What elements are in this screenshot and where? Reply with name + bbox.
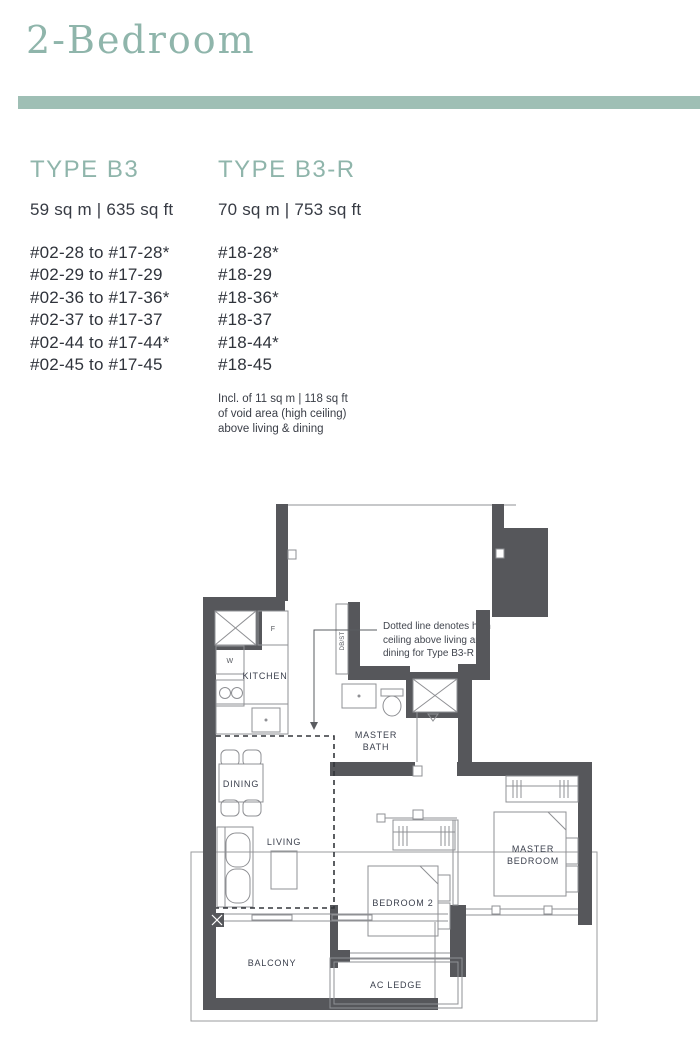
bath-sink bbox=[342, 684, 376, 708]
balcony-label: BALCONY bbox=[248, 958, 297, 968]
master-bed bbox=[494, 812, 578, 896]
hob bbox=[216, 680, 244, 706]
kitchen-label: KITCHEN bbox=[242, 671, 287, 681]
door-jamb bbox=[413, 810, 423, 819]
living-label: LIVING bbox=[267, 837, 301, 847]
kitchen-void-shaft bbox=[208, 605, 262, 650]
master-bedroom-label-2: BEDROOM bbox=[507, 856, 559, 866]
coffee-table bbox=[271, 851, 297, 889]
washer-label: W bbox=[227, 658, 234, 665]
floorplan-drawing: KITCHEN DINING LIVING MASTER BATH MASTER… bbox=[0, 0, 700, 1062]
door-jamb bbox=[377, 814, 385, 822]
ac-ledge-label: AC LEDGE bbox=[370, 980, 422, 990]
bedroom2-wardrobe bbox=[393, 820, 455, 850]
master-bath-label-2: BATH bbox=[363, 742, 390, 752]
door-jamb bbox=[496, 549, 504, 558]
db-st-label: DB/ST bbox=[340, 632, 346, 651]
bath-void-shaft bbox=[406, 672, 464, 718]
bedroom2-label: BEDROOM 2 bbox=[372, 898, 433, 908]
dining-label: DINING bbox=[223, 779, 259, 789]
master-bedroom-label-1: MASTER bbox=[512, 844, 554, 854]
master-wardrobe bbox=[506, 776, 578, 802]
toilet bbox=[381, 689, 403, 716]
master-window bbox=[466, 906, 578, 915]
floorplan-page: 2-Bedroom TYPE B3 59 sq m | 635 sq ft #0… bbox=[0, 0, 700, 1062]
door-jamb bbox=[413, 766, 422, 776]
master-bath-label-1: MASTER bbox=[355, 730, 397, 740]
fridge-label: F bbox=[271, 626, 276, 633]
door-jamb bbox=[288, 550, 296, 559]
kitchen-counter-sink bbox=[216, 704, 288, 734]
balcony-drain-mark bbox=[210, 913, 224, 927]
high-ceiling-dashed-line bbox=[216, 736, 334, 908]
sofa bbox=[217, 827, 253, 907]
